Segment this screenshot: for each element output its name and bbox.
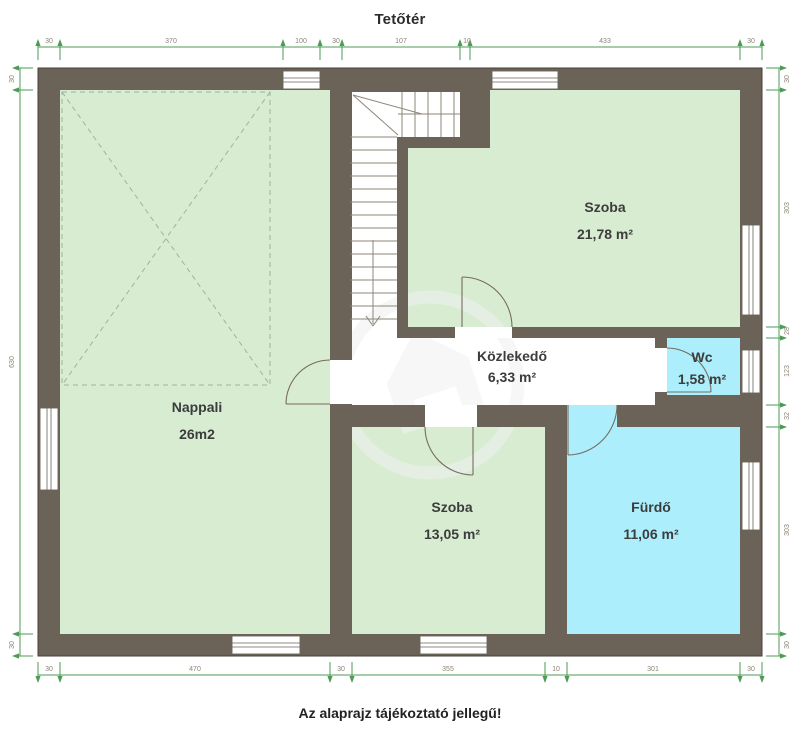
- window-top-szoba: [492, 71, 558, 89]
- room-area: 26m2: [172, 427, 223, 441]
- window-left-nappali: [40, 408, 58, 490]
- window-top-nappali: [283, 71, 320, 89]
- dim-label: 100: [295, 38, 307, 45]
- floor-plan-canvas: Tetőtér: [0, 0, 800, 735]
- room-name: Wc: [692, 349, 713, 365]
- room-name: Szoba: [584, 199, 625, 215]
- dim-label: 301: [647, 666, 659, 673]
- room-area: 11,06 m²: [623, 527, 678, 541]
- room-label-kozlekedo: Közlekedő 6,33 m²: [477, 349, 547, 384]
- dim-label: 30: [9, 75, 16, 83]
- dim-label: 303: [784, 202, 791, 214]
- nappali-floor: [60, 90, 330, 634]
- window-bottom-szoba: [420, 636, 487, 654]
- room-label-furdo: Fürdő 11,06 m²: [623, 500, 678, 541]
- room-name: Szoba: [431, 499, 472, 515]
- room-name: Fürdő: [631, 499, 671, 515]
- window-right-wc: [742, 350, 760, 393]
- room-name: Nappali: [172, 399, 223, 415]
- dim-label: 30: [337, 666, 345, 673]
- room-area: 1,58 m²: [678, 372, 726, 386]
- disclaimer-note: Az alaprajz tájékoztató jellegű!: [0, 705, 800, 721]
- window-right-szoba-top: [742, 225, 760, 315]
- dim-label: 10: [552, 666, 560, 673]
- dim-label: 630: [9, 356, 16, 368]
- room-name: Közlekedő: [477, 348, 547, 364]
- dim-label: 123: [784, 365, 791, 377]
- dim-label: 30: [45, 666, 53, 673]
- room-area: 13,05 m²: [424, 527, 480, 541]
- window-right-furdo: [742, 462, 760, 530]
- room-area: 6,33 m²: [477, 370, 547, 384]
- room-label-nappali: Nappali 26m2: [172, 400, 223, 441]
- dim-label: 30: [332, 38, 340, 45]
- dim-label: 30: [784, 75, 791, 83]
- dim-label: 32: [784, 412, 791, 420]
- dim-label: 10: [463, 38, 471, 45]
- dim-label: 30: [45, 38, 53, 45]
- dim-label: 370: [165, 38, 177, 45]
- window-bottom-nappali: [232, 636, 300, 654]
- dim-label: 30: [9, 641, 16, 649]
- dim-label: 470: [189, 666, 201, 673]
- dim-label: 107: [395, 38, 407, 45]
- room-label-szoba-top: Szoba 21,78 m²: [577, 200, 633, 241]
- dim-label: 28: [784, 327, 791, 335]
- room-area: 21,78 m²: [577, 227, 633, 241]
- dim-label: 30: [784, 641, 791, 649]
- dim-label: 433: [599, 38, 611, 45]
- dim-label: 30: [747, 38, 755, 45]
- room-label-wc: Wc 1,58 m²: [678, 350, 726, 386]
- dim-label: 303: [784, 524, 791, 536]
- dim-label: 30: [747, 666, 755, 673]
- dim-label: 355: [442, 666, 454, 673]
- room-label-szoba-lower: Szoba 13,05 m²: [424, 500, 480, 541]
